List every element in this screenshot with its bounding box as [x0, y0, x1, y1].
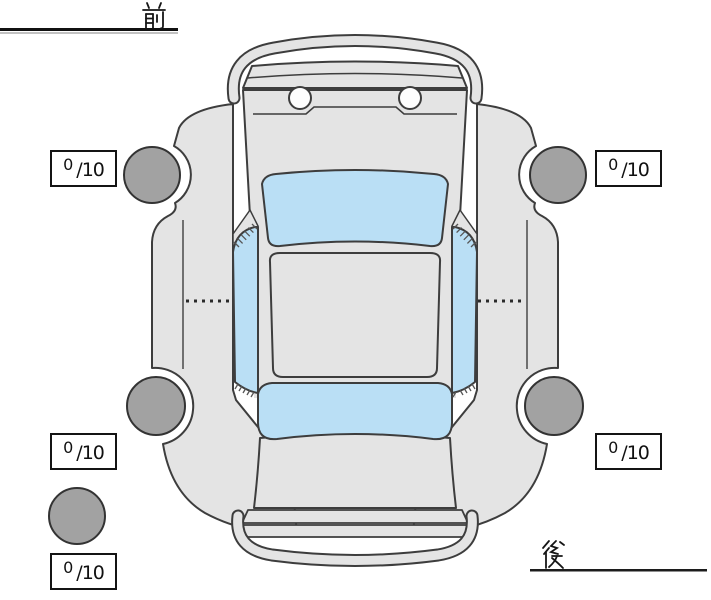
- tire-condition-diagram: 前 後 0 /10 0 /10 0 /10 0 /10 0 /10: [0, 0, 711, 600]
- tread-score-rear-left: 0 /10: [50, 433, 117, 470]
- tire-rear-right: [525, 377, 583, 435]
- score-value: 0: [608, 155, 618, 174]
- tire-front-left: [124, 147, 180, 203]
- tread-score-rear-right: 0 /10: [595, 433, 662, 470]
- hood-circle-left: [289, 87, 311, 109]
- score-denominator: /10: [76, 562, 104, 584]
- score-value: 0: [608, 438, 618, 457]
- rear-window: [258, 383, 452, 439]
- side-window-left: [233, 227, 258, 393]
- front-underline: [0, 28, 178, 31]
- rear-underline: [530, 569, 707, 572]
- rear-panel-band-upper: [242, 510, 468, 523]
- score-denominator: /10: [621, 159, 649, 181]
- trunk-lid: [254, 434, 456, 509]
- windshield: [262, 170, 448, 246]
- score-denominator: /10: [76, 442, 104, 464]
- tread-score-front-right: 0 /10: [595, 150, 662, 187]
- rear-label: 後: [539, 538, 564, 566]
- tread-score-spare: 0 /10: [50, 553, 117, 590]
- score-value: 0: [63, 155, 73, 174]
- hood-circle-right: [399, 87, 421, 109]
- front-underline-thin: [0, 32, 178, 33]
- rear-panel-band-lower: [240, 525, 470, 537]
- score-value: 0: [63, 558, 73, 577]
- spare-tire: [49, 488, 105, 544]
- tread-score-front-left: 0 /10: [50, 150, 117, 187]
- cowl-panel: [243, 62, 467, 89]
- tire-rear-left: [127, 377, 185, 435]
- front-label: 前: [140, 0, 165, 28]
- score-value: 0: [63, 438, 73, 457]
- tire-front-right: [530, 147, 586, 203]
- side-window-right: [452, 227, 477, 393]
- car-top-view-diagram: [0, 0, 711, 600]
- score-denominator: /10: [621, 442, 649, 464]
- score-denominator: /10: [76, 159, 104, 181]
- roof: [270, 253, 440, 377]
